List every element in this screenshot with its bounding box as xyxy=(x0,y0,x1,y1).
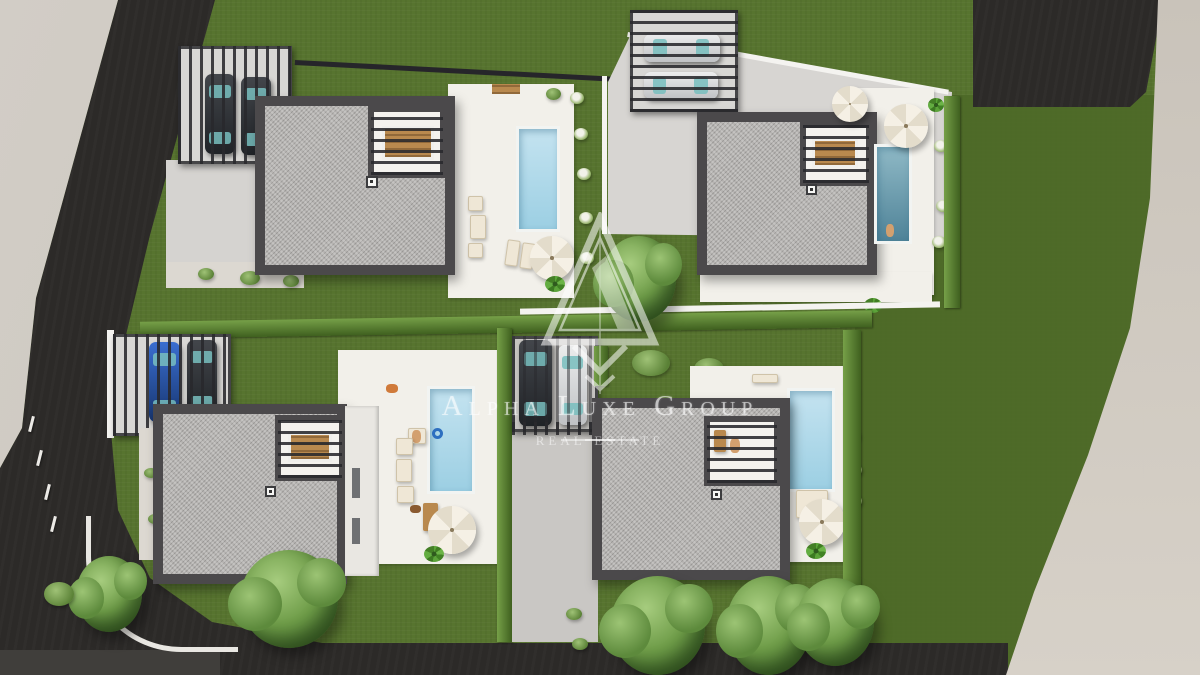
hedge-driveway-west xyxy=(497,328,512,642)
pergola-slats xyxy=(371,109,443,175)
patio-chair xyxy=(397,486,414,503)
patio-chair xyxy=(468,243,483,258)
bush xyxy=(572,638,588,650)
bush xyxy=(546,88,561,100)
villa3-white-wing xyxy=(345,406,379,576)
parasol xyxy=(832,86,868,122)
pergola-slats xyxy=(707,419,777,483)
facade-window xyxy=(352,518,360,544)
hedge-east xyxy=(843,330,861,592)
swimmer xyxy=(886,224,894,237)
skylight xyxy=(265,486,276,497)
hedge-east xyxy=(944,96,960,308)
person-lounging xyxy=(412,430,421,443)
sun-lounger xyxy=(752,374,778,383)
bush xyxy=(198,268,214,280)
boundary-wall-center xyxy=(602,76,607,234)
flower-bush xyxy=(574,128,588,140)
facade-window xyxy=(352,468,360,498)
pergola-slats xyxy=(278,418,342,478)
skylight xyxy=(711,489,722,500)
bush xyxy=(283,275,299,287)
tree xyxy=(610,576,705,675)
parasol xyxy=(884,104,928,148)
tree xyxy=(240,550,338,648)
palm-plant xyxy=(928,98,944,112)
site-plan-render: Alpha Luxe Group real estate xyxy=(0,0,1200,675)
carport-slats xyxy=(630,10,738,112)
bush xyxy=(44,582,74,606)
pergola-slats xyxy=(803,125,869,183)
watermark-brand: Alpha Luxe Group xyxy=(360,390,840,423)
alpha-luxe-logo-icon xyxy=(540,212,660,394)
patio-table xyxy=(470,215,486,239)
skylight xyxy=(366,176,378,188)
pool-float xyxy=(432,428,443,439)
tree xyxy=(76,556,142,632)
palm-plant xyxy=(806,543,826,559)
skylight xyxy=(806,184,817,195)
tree xyxy=(796,578,874,666)
villa2-terrace-south xyxy=(700,272,932,302)
tagline-rule-right xyxy=(561,439,639,441)
villa1-planter xyxy=(492,84,520,94)
palm-plant xyxy=(424,546,444,562)
road-shoulder xyxy=(0,650,220,675)
flower-bush xyxy=(570,92,584,104)
patio-chair xyxy=(396,438,413,455)
patio-chair xyxy=(468,196,483,211)
dog xyxy=(410,505,421,513)
parasol xyxy=(799,499,845,545)
flower-bush xyxy=(577,168,591,180)
patio-table xyxy=(396,459,412,482)
bush xyxy=(566,608,582,620)
